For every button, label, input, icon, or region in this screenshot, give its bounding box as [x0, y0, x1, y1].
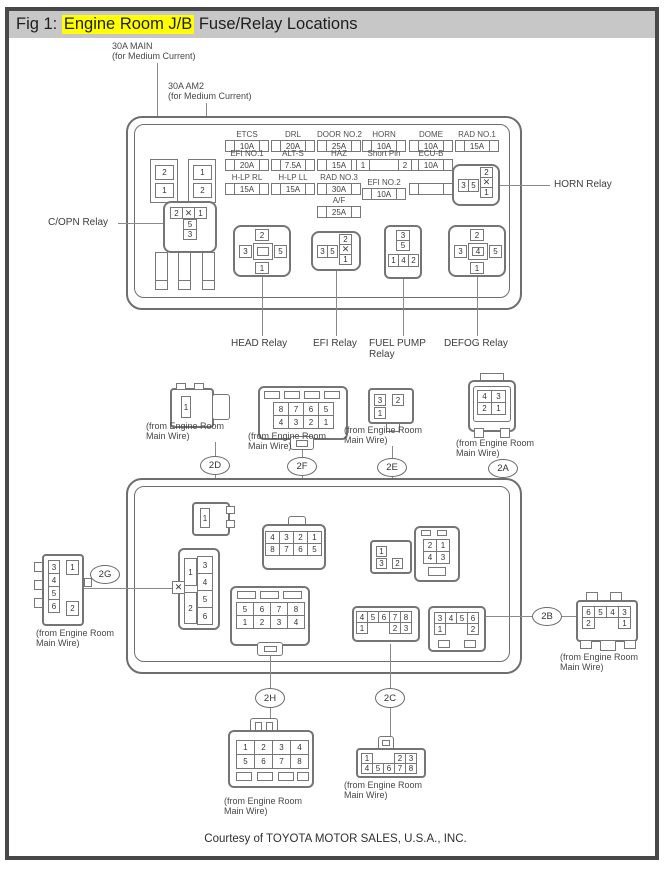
fuse-label: ETCS	[225, 130, 269, 140]
relay-head-pin-top: 2	[255, 229, 269, 241]
connector-socket-2b-pins: 345612	[434, 612, 479, 635]
fuse-amp: 15A	[465, 141, 490, 151]
label-30a-main: 30A MAIN (for Medium Current)	[112, 41, 196, 61]
connector-socket-2f-pins: 43218765	[265, 531, 322, 556]
label-30a-am2-line1: 30A AM2	[168, 81, 252, 91]
relay-head-pin-bottom: 1	[255, 262, 269, 274]
connector-tab	[264, 391, 280, 399]
fuse-af: A/F25A	[317, 196, 361, 218]
pin-cell: 1	[618, 617, 631, 629]
fuse-body: 10A	[362, 188, 406, 200]
fuse-relay-diagram-page: { "title": {"prefix": "Fig 1: ", "highli…	[0, 0, 671, 876]
short-pin-label: Short Pin	[356, 149, 412, 159]
fuse-amp	[419, 184, 444, 194]
leader-line-defog-relay	[477, 277, 478, 336]
wire-note-line1: (from Engine Room	[560, 652, 638, 662]
tag-2b: 2B	[532, 607, 562, 626]
pin-cell: 6	[303, 402, 319, 416]
pin-cell: 1	[236, 615, 254, 629]
short-pin: Short Pin 12	[356, 149, 412, 171]
relay-head-label: HEAD Relay	[231, 338, 287, 349]
pin-cell: 2	[477, 402, 492, 415]
pin-cell: 1	[236, 740, 255, 755]
connector-plug-2d-pin: 1	[181, 396, 191, 418]
connector-plug-2g-pin: 2	[66, 601, 79, 616]
relay-copn-label: C/OPN Relay	[48, 217, 108, 228]
pin-cell: 3	[288, 415, 304, 429]
pin-cell: 1	[491, 402, 506, 415]
slot-line	[203, 280, 214, 281]
pin-cell: 5	[396, 240, 410, 251]
pin-cell: 7	[279, 543, 294, 556]
fuse-end	[444, 184, 452, 194]
pin-cell: 7	[288, 402, 304, 416]
fuse-end	[260, 184, 268, 194]
leader-line-2f	[302, 450, 303, 457]
fuse-efi-no1: EFI NO.120A	[225, 149, 269, 171]
pin-cell: 3	[436, 551, 450, 564]
leader-line-2b	[486, 616, 576, 617]
pin-cell: 5	[48, 586, 60, 600]
wire-note-line1: (from Engine Room	[456, 438, 534, 448]
tag-2a: 2A	[488, 459, 518, 478]
fuse-block-cell: 1	[193, 165, 212, 180]
connector-tab	[297, 772, 309, 781]
pin-cell: 6	[293, 543, 308, 556]
fuse-body: 15A	[225, 183, 269, 195]
slot-line	[179, 280, 190, 281]
fuse-label: RAD NO.1	[455, 130, 499, 140]
wire-note-line2: Main Wire)	[36, 638, 114, 648]
pin-cell: 1	[194, 207, 207, 219]
leader-line-2h	[270, 656, 271, 688]
leader-line-horn-relay	[500, 185, 550, 186]
connector-tab	[226, 520, 235, 528]
leader-line-2d	[215, 442, 216, 456]
connector-plug-2g-pin: 1	[66, 560, 79, 575]
connector-plug-2e-pin: 3	[374, 394, 386, 406]
wire-note-2g: (from Engine RoomMain Wire)	[36, 628, 114, 648]
relay-defog-center-inner: 4	[472, 247, 484, 256]
wire-note-2c: (from Engine RoomMain Wire)	[344, 780, 422, 800]
fuse-label: H-LP RL	[225, 173, 269, 183]
connector-tab	[176, 383, 186, 390]
fuse-end	[352, 184, 360, 194]
connector-plug-2a-pins: 4321	[477, 390, 506, 415]
pin-cell: 6	[48, 599, 60, 613]
relay-fuel-label-line2: Relay	[369, 349, 395, 360]
fuse-end	[318, 184, 327, 194]
pin-cell: 3	[272, 740, 291, 755]
wire-note-line1: (from Engine Room	[344, 425, 422, 435]
empty-slot	[202, 252, 215, 290]
fuse-end	[306, 160, 314, 170]
fuse-body: 15A	[317, 159, 361, 171]
connector-socket-2g-x-mark: ✕	[172, 581, 185, 594]
fuse-end	[490, 141, 498, 151]
connector-tab	[260, 591, 279, 599]
pin-cell: 4	[287, 615, 305, 629]
relay-defog-pin-right: 5	[489, 245, 502, 258]
pin-cell: 2	[253, 615, 271, 629]
title-highlight: Engine Room J/B	[62, 15, 194, 34]
connector-tab	[580, 640, 592, 649]
connector-tab	[278, 772, 294, 781]
pin-cell: 2	[254, 740, 273, 755]
connector-plug-2g-pins-left: 3456	[48, 560, 60, 613]
connector-tab	[624, 640, 636, 649]
wire-note-line2: Main Wire)	[146, 431, 224, 441]
pin-cell: 5	[468, 179, 479, 192]
wire-note-line1: (from Engine Room	[248, 431, 326, 441]
pin-cell: 4	[290, 740, 309, 755]
fuse-end	[318, 160, 327, 170]
connector-plug-2h-pins: 12345678	[236, 740, 309, 769]
connector-socket-2h-pins: 56781234	[236, 602, 305, 629]
fuse-block-am2: 1 2	[188, 159, 216, 203]
pin-cell: 5	[236, 754, 255, 769]
connector-tab	[600, 640, 616, 651]
leader-line-2e	[392, 446, 393, 458]
wire-note-2d: (from Engine RoomMain Wire)	[146, 421, 224, 441]
relay-head-center-inner	[257, 247, 269, 256]
relay-copn-pins-stack: 53	[183, 219, 197, 240]
relay-horn-pins-v: 2✕1	[480, 167, 493, 198]
connector-tab	[438, 640, 450, 648]
fuse-end	[444, 160, 452, 170]
fuse-end	[226, 160, 235, 170]
relay-head-pin-right: 5	[274, 245, 287, 258]
fuse-end	[363, 189, 372, 199]
wire-note-2b: (from Engine RoomMain Wire)	[560, 652, 638, 672]
tag-2f: 2F	[287, 457, 317, 476]
pin-cell: 8	[290, 754, 309, 769]
connector-socket-2g-pin: 2	[184, 592, 197, 624]
fuse-amp: 15A	[281, 184, 306, 194]
fuse-ecu-b: ECU-B10A	[409, 149, 453, 171]
connector-socket-2h-tab	[257, 642, 283, 656]
pin-cell: 8	[265, 543, 280, 556]
fuse-label: ECU-B	[409, 149, 453, 159]
wire-note-line1: (from Engine Room	[344, 780, 422, 790]
relay-fuel-label-line1: FUEL PUMP	[369, 338, 426, 349]
fuse-empty	[409, 183, 453, 195]
fuse-block-main: 2 1	[150, 159, 178, 203]
label-30a-main-line1: 30A MAIN	[112, 41, 196, 51]
connector-tab	[382, 740, 390, 746]
pin-cell: 6	[253, 602, 271, 616]
connector-plug-2b-pins: 654321	[582, 606, 631, 629]
connector-tab	[324, 391, 340, 399]
fuse-body: 15A	[455, 140, 499, 152]
relay-head-pin-left: 3	[239, 245, 252, 258]
fuse-label: EFI NO.2	[362, 178, 406, 188]
title-prefix: Fig 1:	[16, 15, 62, 34]
leader-line-head-relay	[262, 277, 263, 336]
slot-line	[156, 280, 167, 281]
fuse-body	[409, 183, 453, 195]
connector-tab	[304, 391, 320, 399]
pin-cell: 8	[273, 402, 289, 416]
courtesy-footer: Courtesy of TOYOTA MOTOR SALES, U.S.A., …	[0, 833, 671, 845]
connector-plug-2e-pin: 2	[392, 394, 404, 406]
connector-tab	[237, 591, 256, 599]
connector-tab	[236, 772, 252, 781]
connector-tab	[437, 530, 447, 536]
wire-note-line1: (from Engine Room	[224, 796, 302, 806]
pin-cell: 5	[197, 590, 213, 608]
connector-socket-2c-pins: 45678123	[356, 611, 412, 634]
fuse-label: RAD NO.3	[317, 173, 361, 183]
connector-tab	[264, 646, 277, 652]
wire-note-line2: Main Wire)	[456, 448, 534, 458]
connector-socket-2d	[192, 502, 230, 536]
wire-note-line1: (from Engine Room	[36, 628, 114, 638]
empty-slot	[155, 252, 168, 290]
connector-socket-2e-pin: 3	[376, 558, 387, 569]
wire-note-line2: Main Wire)	[344, 435, 422, 445]
connector-socket-2d-pin: 1	[200, 508, 210, 528]
fuse-amp: 25A	[327, 207, 352, 217]
pin-cell: 1	[318, 415, 334, 429]
pin-cell: 3	[183, 229, 197, 240]
label-30a-am2: 30A AM2 (for Medium Current)	[168, 81, 252, 101]
pin-cell: 3	[197, 556, 213, 574]
fuse-body: 15A	[271, 183, 315, 195]
fuse-rad-no3: RAD NO.330A	[317, 173, 361, 195]
fuse-end	[272, 184, 281, 194]
pin-cell: 6	[197, 607, 213, 625]
figure-title-bar: Fig 1: Engine Room J/B Fuse/Relay Locati…	[9, 11, 655, 38]
connector-plug-2c-pins: 12345678	[361, 753, 417, 774]
fuse-end	[226, 184, 235, 194]
tag-2g: 2G	[90, 565, 120, 584]
connector-tab	[428, 567, 446, 576]
label-30a-am2-line2: (for Medium Current)	[168, 91, 252, 101]
connector-tab	[421, 530, 431, 536]
relay-defog-pin-top: 2	[470, 229, 484, 241]
fuse-end	[306, 184, 314, 194]
pin-cell: 4	[197, 573, 213, 591]
pin-cell: 7	[270, 602, 288, 616]
fuse-haz: HAZ15A	[317, 149, 361, 171]
connector-tab	[226, 506, 235, 514]
connector-tab	[283, 591, 302, 599]
fuse-label: H-LP LL	[271, 173, 315, 183]
fuse-label: A/F	[317, 196, 361, 206]
relay-fuel-pins-stack: 35	[396, 230, 410, 251]
relay-horn-label: HORN Relay	[554, 179, 612, 190]
fuse-end	[456, 141, 465, 151]
connector-socket-2g-pins-right: 3456	[197, 556, 213, 625]
fuse-alt-s: ALT-S7.5A	[271, 149, 315, 171]
fuse-amp: 7.5A	[281, 160, 306, 170]
leader-line-efi-relay	[336, 271, 337, 336]
short-pin-cell: 1	[357, 160, 369, 170]
short-pin-mid	[369, 160, 399, 170]
connector-tab	[194, 383, 204, 390]
pin-cell: 3	[400, 622, 412, 634]
fuse-end	[352, 207, 360, 217]
pin-cell: 2	[467, 623, 479, 635]
connector-tab	[500, 428, 510, 438]
wire-note-line2: Main Wire)	[224, 806, 302, 816]
pin-cell: 5	[307, 543, 322, 556]
pin-cell: 1	[480, 187, 493, 198]
connector-tab	[464, 640, 476, 648]
fuse-hlp-rl: H-LP RL15A	[225, 173, 269, 195]
pin-cell: 2	[408, 254, 419, 267]
fuse-end	[318, 207, 327, 217]
fuse-amp: 30A	[327, 184, 352, 194]
tag-2e: 2E	[377, 458, 407, 477]
connector-plug-2d-attachment	[212, 394, 230, 420]
wire-note-line2: Main Wire)	[344, 790, 422, 800]
pin-cell: 7	[272, 754, 291, 769]
fuse-end	[260, 160, 268, 170]
short-pin-cell: 2	[399, 160, 411, 170]
fuse-label: HORN	[362, 130, 406, 140]
fuse-label: DOOR NO.2	[317, 130, 361, 140]
leader-line-2g	[84, 588, 172, 589]
relay-defog-pin-left: 3	[454, 245, 467, 258]
connector-socket-2a-pins: 2143	[423, 539, 450, 564]
short-pin-body: 12	[356, 159, 412, 171]
fuse-block-cell: 1	[155, 183, 174, 198]
pin-cell: 5	[236, 602, 254, 616]
pin-cell: 8	[405, 763, 417, 774]
relay-defog-center: 4	[468, 243, 488, 260]
wire-note-2h: (from Engine RoomMain Wire)	[224, 796, 302, 816]
pin-cell: 8	[287, 602, 305, 616]
fuse-amp: 20A	[235, 160, 260, 170]
wire-note-line2: Main Wire)	[560, 662, 638, 672]
fuse-block-cell: 2	[155, 165, 174, 180]
empty-slot	[178, 252, 191, 290]
fuse-efi-no2: EFI NO.210A	[362, 178, 406, 200]
relay-defog-label: DEFOG Relay	[444, 338, 508, 349]
connector-socket-2e-pin: 1	[376, 546, 387, 557]
fuse-end	[272, 160, 281, 170]
relay-fuel-pins-row: 142	[388, 254, 419, 267]
tag-2c: 2C	[375, 688, 405, 708]
pin-cell: 4	[273, 415, 289, 429]
tag-2d: 2D	[200, 456, 230, 475]
fuse-body: 10A	[409, 159, 453, 171]
fuse-label: DOME	[409, 130, 453, 140]
fuse-amp: 10A	[419, 160, 444, 170]
leader-line-2c	[390, 708, 391, 736]
relay-defog-pin-bottom: 1	[470, 262, 484, 274]
fuse-label: ALT-S	[271, 149, 315, 159]
connector-plug-2f-pins: 87654321	[273, 402, 334, 429]
wire-note-2f: (from Engine RoomMain Wire)	[248, 431, 326, 451]
connector-tab	[474, 428, 484, 438]
fuse-amp: 10A	[372, 189, 397, 199]
pin-cell: 1	[339, 254, 352, 265]
relay-efi-label: EFI Relay	[313, 338, 357, 349]
pin-cell: 5	[327, 245, 338, 258]
title-suffix: Fuse/Relay Locations	[194, 15, 357, 34]
relay-horn-pins-h: 35	[458, 179, 479, 192]
fuse-body: 30A	[317, 183, 361, 195]
relay-copn-pins-top: 2✕1	[170, 207, 207, 219]
pin-cell: 4	[423, 551, 437, 564]
pin-cell: 3	[270, 615, 288, 629]
wire-note-line2: Main Wire)	[248, 441, 326, 451]
fuse-end	[410, 184, 419, 194]
fuse-body: 20A	[225, 159, 269, 171]
wire-note-2e: (from Engine RoomMain Wire)	[344, 425, 422, 445]
pin-cell: 5	[318, 402, 334, 416]
leader-line-2c	[390, 644, 391, 688]
connector-socket-2g-pin: 1	[184, 558, 197, 586]
fuse-amp: 15A	[327, 160, 352, 170]
label-30a-main-line2: (for Medium Current)	[112, 51, 196, 61]
connector-tab	[257, 772, 273, 781]
fuse-label: EFI NO.1	[225, 149, 269, 159]
pin-cell: 6	[254, 754, 273, 769]
fuse-end	[397, 189, 405, 199]
connector-plug-2e-pin: 1	[374, 407, 386, 419]
fuse-block-cell: 2	[193, 183, 212, 198]
tag-2h: 2H	[255, 688, 285, 708]
relay-head-center	[253, 243, 273, 260]
fuse-label: DRL	[271, 130, 315, 140]
fuse-amp: 15A	[235, 184, 260, 194]
relay-efi-pins-h: 35	[317, 245, 338, 258]
wire-note-2a: (from Engine RoomMain Wire)	[456, 438, 534, 458]
fuse-body: 7.5A	[271, 159, 315, 171]
connector-tab	[84, 578, 92, 587]
connector-socket-2e-pin: 2	[392, 558, 403, 569]
wire-note-line1: (from Engine Room	[146, 421, 224, 431]
relay-efi-pins-v: 2✕1	[339, 234, 352, 265]
pin-cell: 4	[48, 573, 60, 587]
leader-line-copn-relay	[118, 223, 163, 224]
pin-cell: 2	[303, 415, 319, 429]
fuse-label: HAZ	[317, 149, 361, 159]
fuse-rad-no1: RAD NO.115A	[455, 130, 499, 152]
fuse-body: 25A	[317, 206, 361, 218]
leader-line-fuel-relay	[403, 279, 404, 336]
pin-cell: 3	[48, 560, 60, 574]
fuse-hlp-ll: H-LP LL15A	[271, 173, 315, 195]
connector-tab	[284, 391, 300, 399]
